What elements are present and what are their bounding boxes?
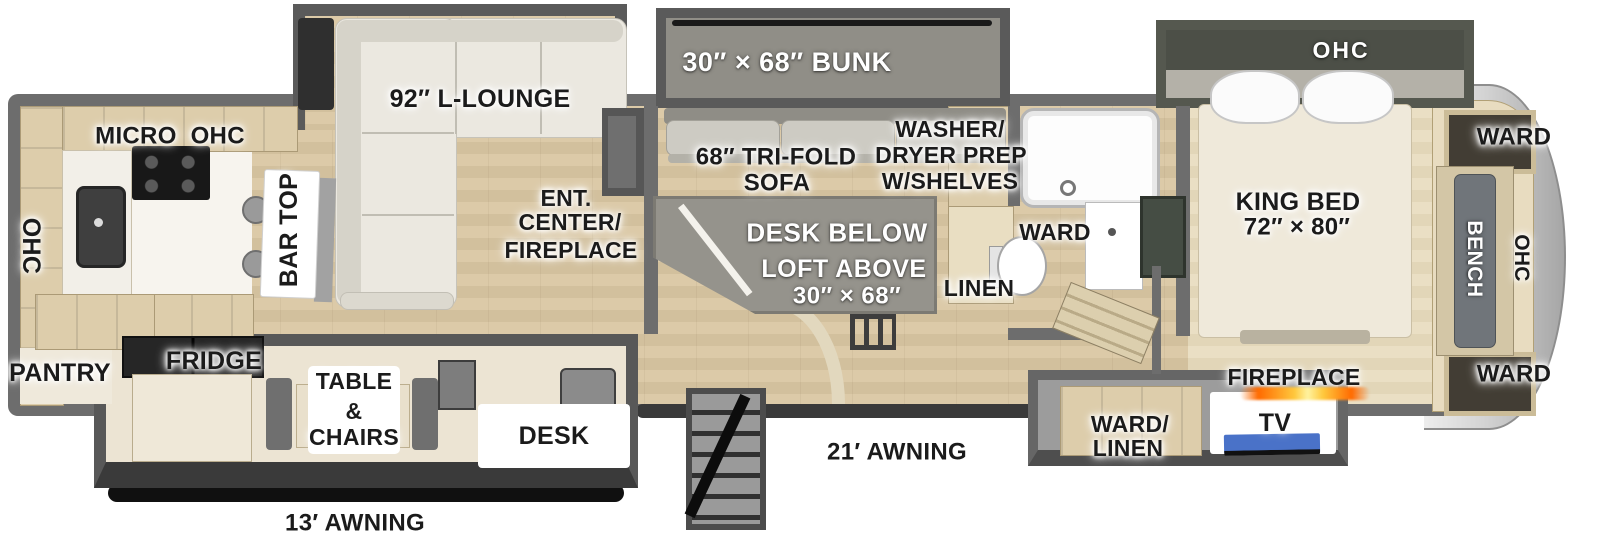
pillow: [1210, 70, 1300, 124]
label-tv: TV: [1259, 410, 1292, 436]
label-amp: &: [346, 399, 363, 423]
vanity-faucet: [1108, 228, 1116, 236]
label-pantry: PANTRY: [9, 360, 111, 386]
ent-center-cabinet-face: [608, 116, 636, 188]
label-king-bed-1: KING BED: [1236, 189, 1361, 215]
label-ward-linen-2: LINEN: [1093, 436, 1164, 460]
label-micro-ohc: MICRO OHC: [95, 123, 245, 148]
label-ohc-bed-slide: OHC: [1312, 38, 1369, 62]
dinette-bench: [412, 378, 438, 450]
stove: [132, 146, 210, 200]
bunk-mattress-edge: [672, 20, 992, 26]
label-ward-top-right: WARD: [1477, 124, 1552, 149]
bathroom-mirror: [1140, 196, 1186, 278]
label-ward-linen-1: WARD/: [1091, 412, 1169, 436]
label-trifold-1: 68″ TRI-FOLD: [696, 144, 856, 169]
bed-foot-bench: [1240, 330, 1370, 344]
label-king-bed-2: 72″ × 80″: [1244, 214, 1350, 239]
shower: [1020, 108, 1160, 208]
label-ohc-front: OHC: [1510, 234, 1532, 282]
label-loft-above-1: LOFT ABOVE: [761, 256, 926, 282]
label-ent-1: ENT.: [540, 186, 591, 210]
shower-drain: [1060, 180, 1076, 196]
desk-monitor: [438, 360, 476, 410]
kitchen-faucet: [94, 218, 103, 227]
dinette-bench: [266, 378, 292, 450]
label-linen-bath: LINEN: [944, 276, 1015, 300]
label-awning-21: 21′ AWNING: [827, 439, 967, 464]
label-chairs: CHAIRS: [309, 425, 399, 449]
label-washer-1: WASHER/: [895, 117, 1004, 141]
vanity-sink: [1085, 202, 1143, 290]
pillow: [1302, 70, 1394, 124]
sofa-back-top: [337, 20, 623, 42]
sofa-back-left: [337, 20, 361, 304]
label-ward-bottom-right: WARD: [1477, 361, 1552, 386]
sofa-seam: [362, 132, 454, 134]
label-washer-2: DRYER PREP: [875, 143, 1027, 167]
label-bench: BENCH: [1463, 220, 1485, 297]
label-fridge: FRIDGE: [166, 348, 262, 374]
lounge-slide-tv-nook: [298, 18, 334, 110]
loft-ladder: [850, 314, 896, 350]
fireplace-flame: [1240, 387, 1370, 400]
label-bar-top: BAR TOP: [276, 173, 302, 287]
label-ward-bath: WARD: [1019, 220, 1090, 244]
sofa-seam: [362, 214, 454, 216]
label-washer-3: W/SHELVES: [882, 169, 1018, 193]
label-desk: DESK: [519, 423, 590, 449]
label-ent-3: FIREPLACE: [504, 238, 637, 262]
label-ent-2: CENTER/: [518, 210, 621, 234]
label-trifold-2: SOFA: [744, 170, 811, 195]
label-l-lounge: 92″ L-LOUNGE: [390, 86, 571, 112]
label-table: TABLE: [316, 369, 392, 393]
label-ohc-left: OHC: [18, 218, 44, 274]
label-bunk: 30″ × 68″ BUNK: [682, 48, 891, 76]
label-loft-above-2: 30″ × 68″: [793, 283, 901, 308]
fridge: [132, 374, 252, 462]
sofa-armrest: [340, 292, 454, 310]
label-fireplace: FIREPLACE: [1227, 365, 1360, 389]
kitchen-sink: [76, 186, 126, 268]
label-desk-below: DESK BELOW: [746, 219, 927, 246]
rv-floorplan: MICRO OHC OHC PANTRY FRIDGE BAR TOP 92″ …: [0, 0, 1600, 536]
label-awning-13: 13′ AWNING: [285, 510, 425, 535]
